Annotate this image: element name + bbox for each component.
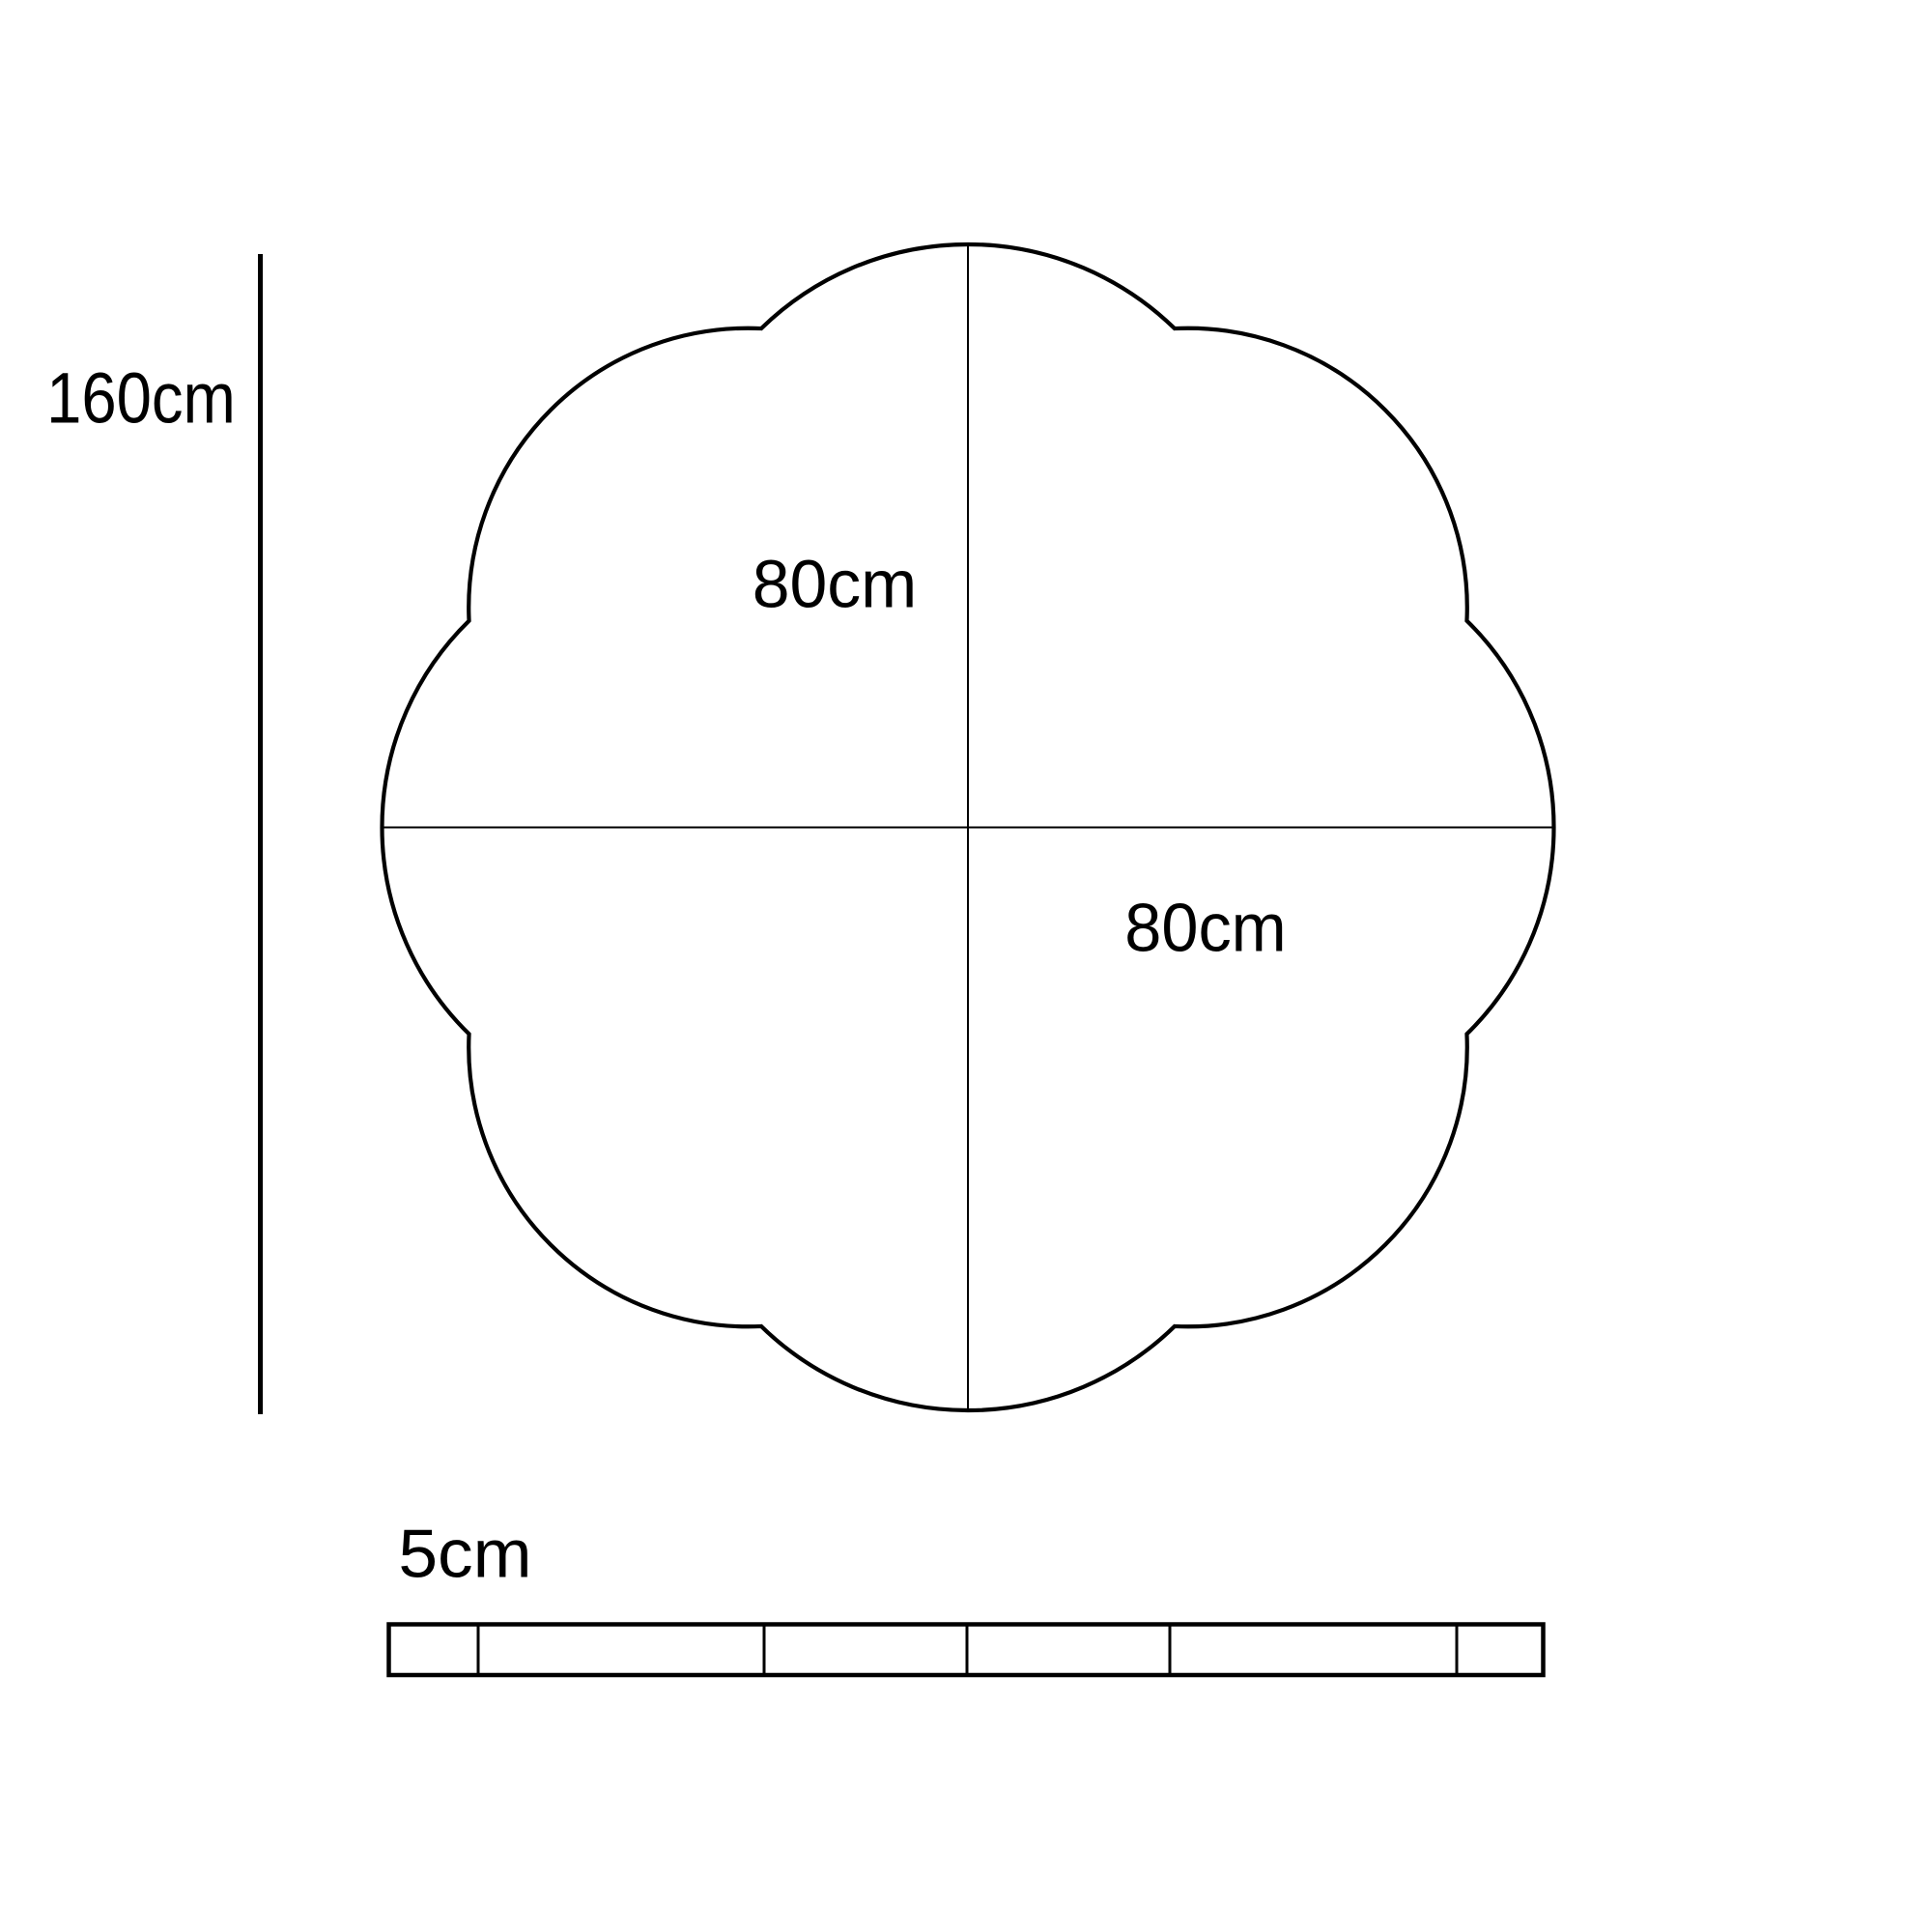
svg-text:80cm: 80cm <box>1124 890 1286 966</box>
svg-text:80cm: 80cm <box>753 547 918 622</box>
svg-text:160cm: 160cm <box>46 357 236 438</box>
svg-text:5cm: 5cm <box>398 1517 531 1593</box>
